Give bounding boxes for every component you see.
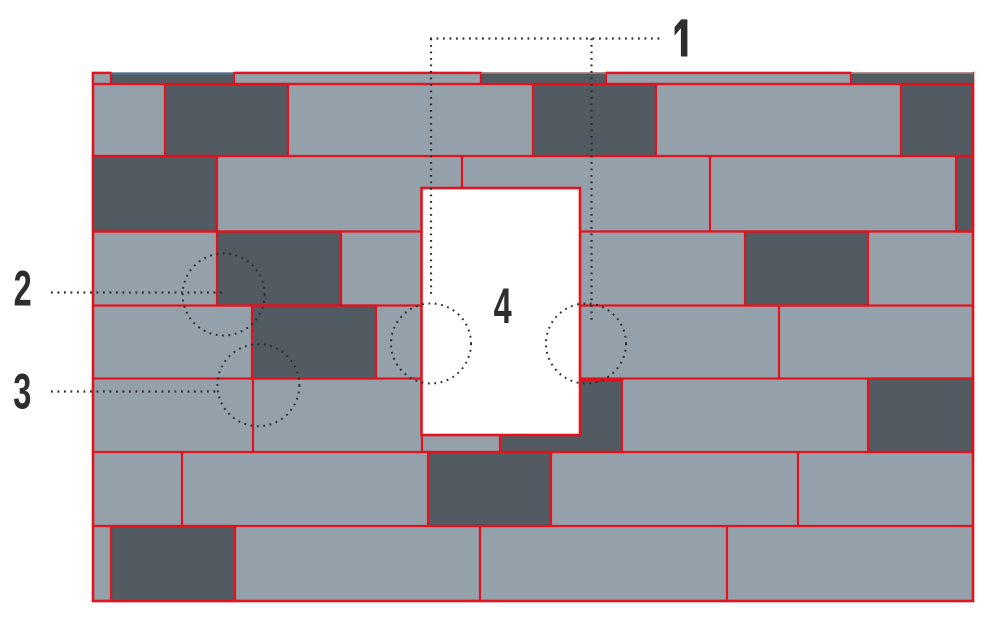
svg-text:3: 3 [13,363,31,419]
svg-text:2: 2 [14,261,32,317]
svg-text:4: 4 [494,278,512,334]
